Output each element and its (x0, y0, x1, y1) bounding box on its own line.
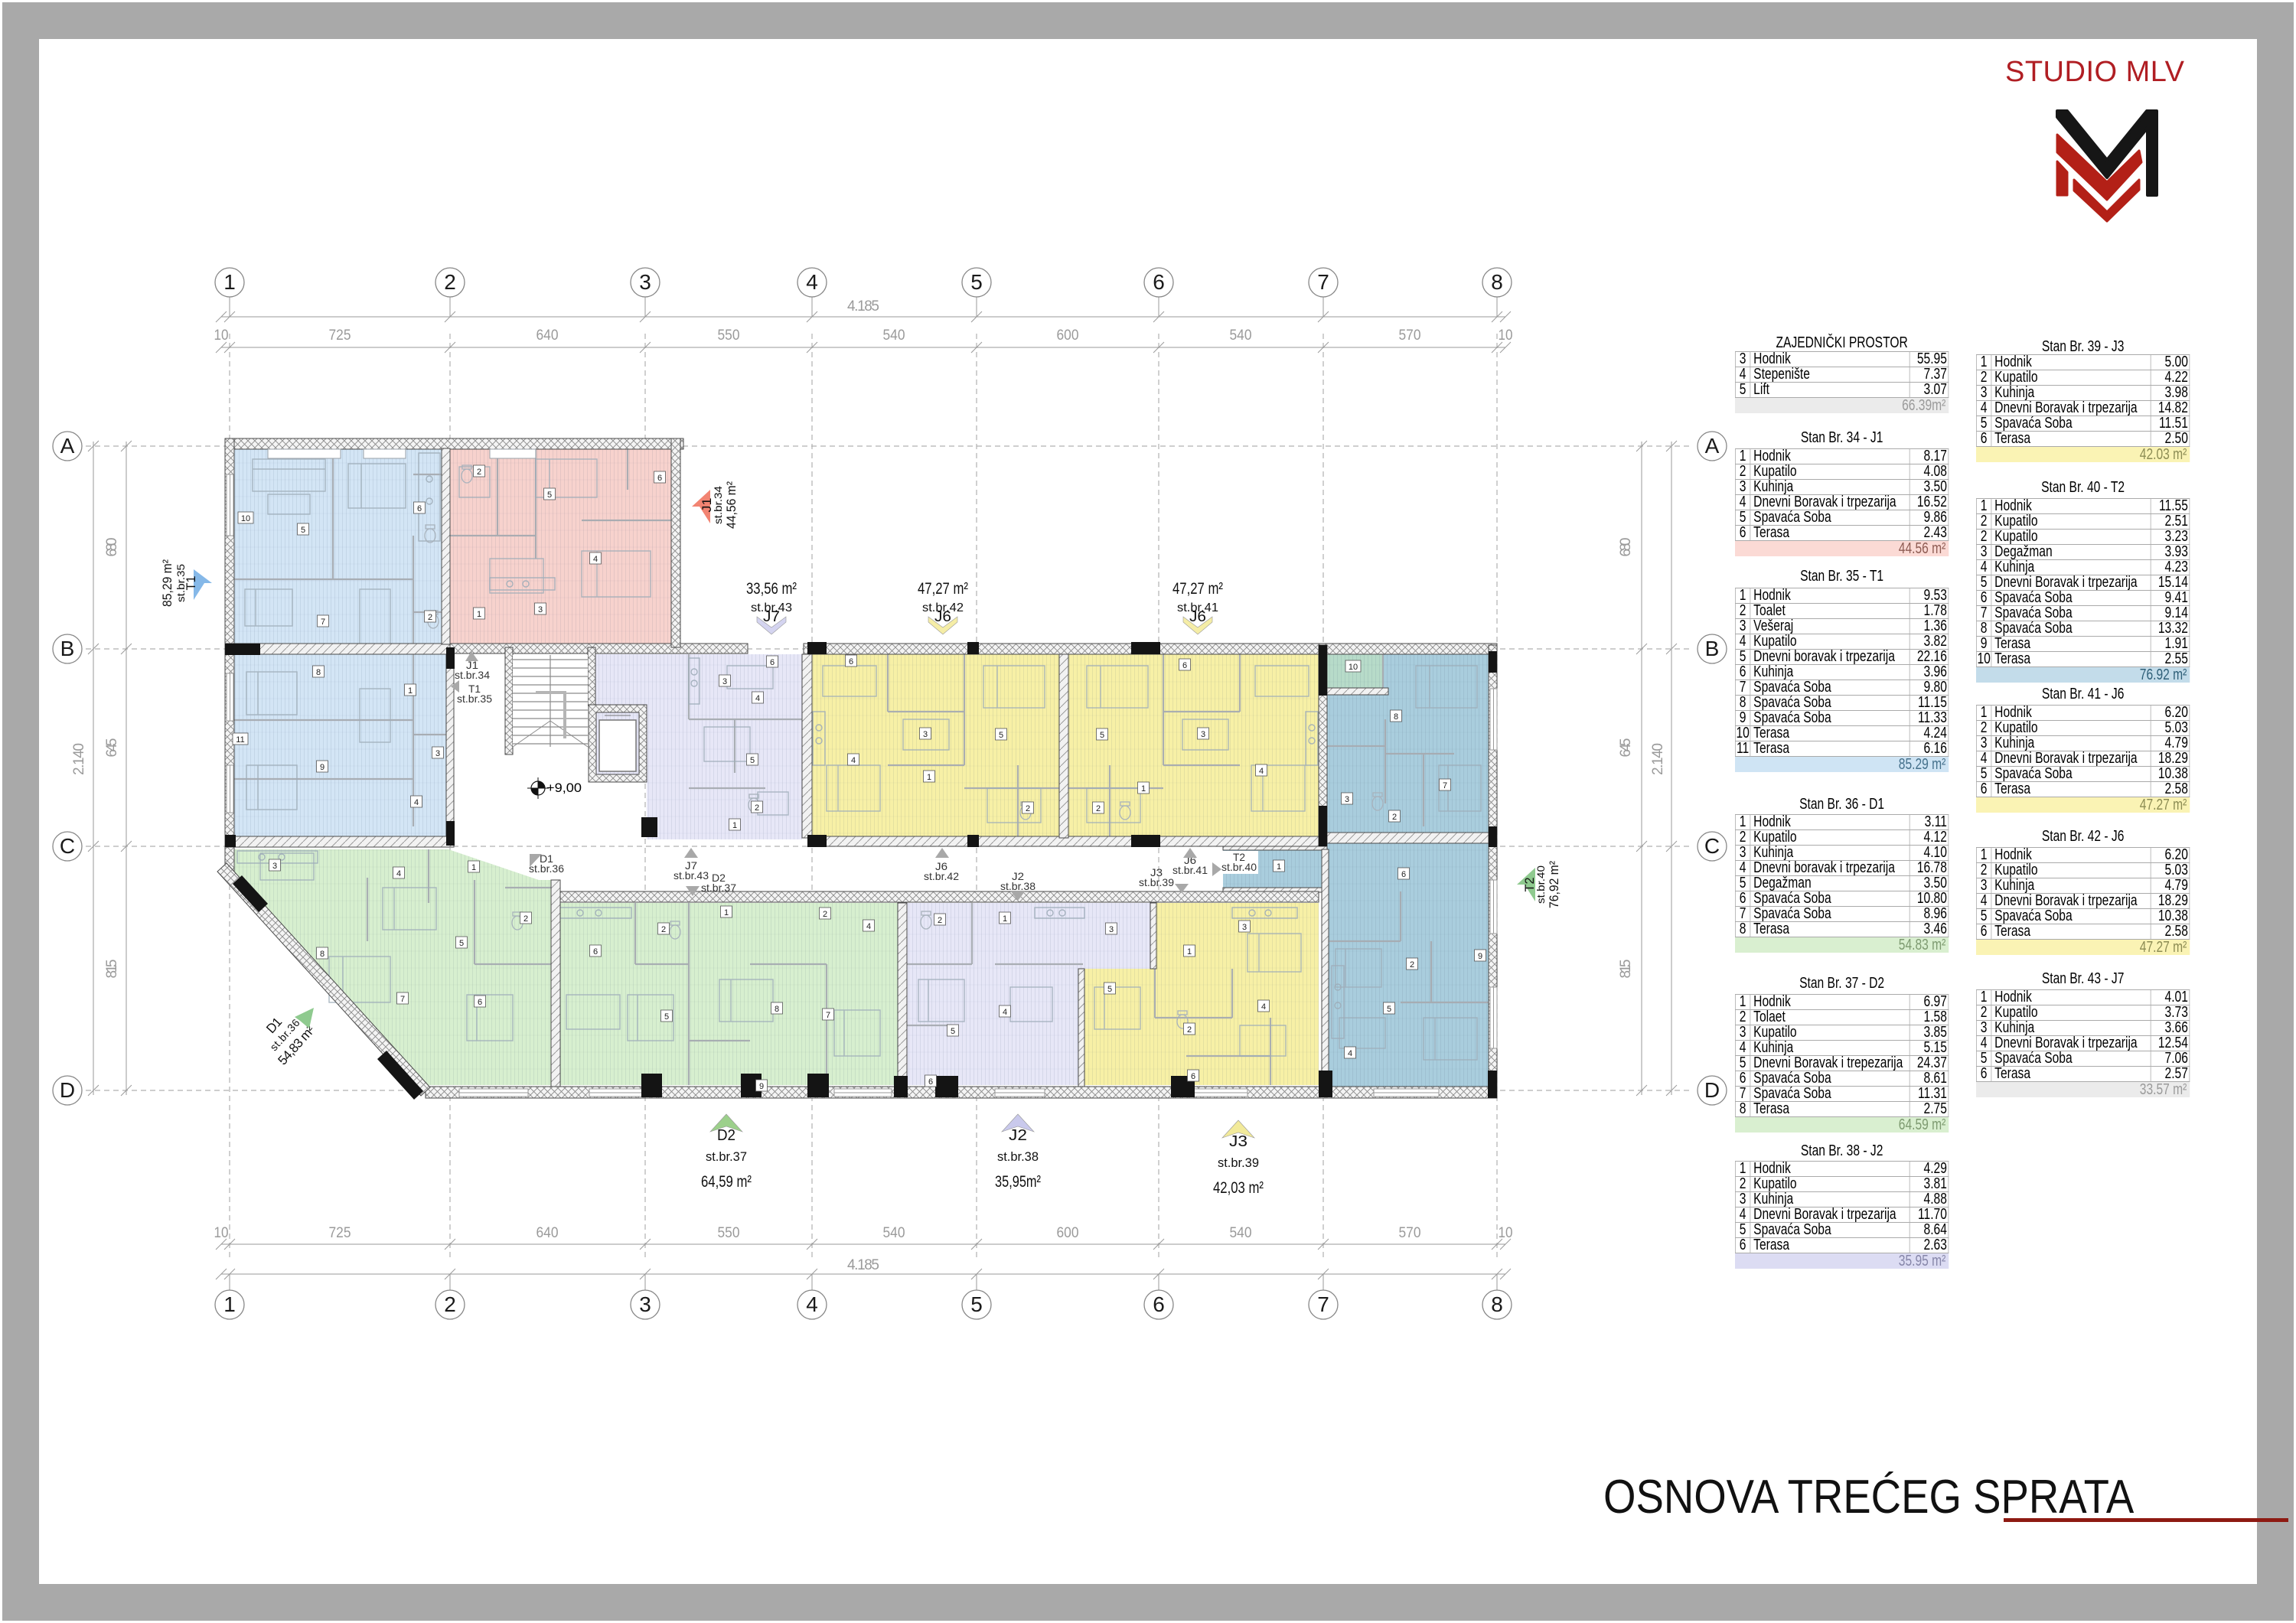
svg-text:8: 8 (1491, 1292, 1503, 1316)
svg-text:64,59 m²: 64,59 m² (701, 1173, 752, 1191)
svg-text:10: 10 (241, 514, 250, 523)
svg-text:2: 2 (661, 925, 666, 934)
svg-text:725: 725 (329, 1225, 351, 1241)
svg-text:2: 2 (428, 613, 432, 622)
svg-text:815: 815 (1618, 960, 1634, 979)
svg-text:4: 4 (414, 798, 419, 807)
svg-text:8: 8 (1491, 270, 1503, 294)
svg-text:6: 6 (1401, 870, 1406, 879)
svg-text:1: 1 (223, 1292, 236, 1316)
svg-text:680: 680 (1618, 538, 1634, 557)
svg-text:2: 2 (1096, 804, 1101, 813)
svg-text:2: 2 (1410, 960, 1414, 970)
svg-text:3: 3 (1242, 923, 1247, 932)
svg-text:6: 6 (770, 658, 775, 667)
svg-text:4: 4 (1261, 1002, 1266, 1012)
svg-text:2: 2 (938, 916, 942, 925)
svg-text:st.br.42: st.br.42 (924, 870, 959, 882)
svg-text:J2: J2 (1009, 1127, 1027, 1144)
svg-text:10: 10 (214, 1225, 229, 1241)
svg-text:10: 10 (1499, 1225, 1513, 1241)
svg-text:st.br.37: st.br.37 (701, 882, 736, 894)
svg-text:42,03 m²: 42,03 m² (1213, 1179, 1264, 1197)
svg-text:5: 5 (1387, 1005, 1391, 1014)
svg-text:1: 1 (1187, 947, 1192, 957)
svg-text:8: 8 (316, 668, 321, 677)
svg-text:4: 4 (806, 1292, 818, 1316)
svg-text:7: 7 (400, 995, 405, 1004)
svg-text:76,92 m²: 76,92 m² (1547, 861, 1561, 908)
svg-text:570: 570 (1399, 328, 1421, 344)
svg-text:st.br.39: st.br.39 (1139, 876, 1174, 888)
svg-text:1: 1 (477, 610, 481, 619)
svg-text:4: 4 (1348, 1049, 1352, 1058)
svg-text:1: 1 (471, 863, 476, 872)
svg-text:J7: J7 (763, 609, 780, 625)
svg-text:A: A (1705, 434, 1720, 458)
svg-text:540: 540 (883, 328, 905, 344)
svg-text:st.br.38: st.br.38 (997, 1149, 1039, 1164)
svg-text:2.140: 2.140 (71, 743, 87, 775)
svg-text:3: 3 (538, 605, 543, 614)
svg-text:5: 5 (664, 1012, 669, 1022)
svg-text:st.br.40: st.br.40 (1221, 861, 1257, 873)
svg-text:4: 4 (755, 694, 760, 703)
svg-text:D: D (1704, 1078, 1720, 1102)
svg-text:540: 540 (1230, 1225, 1252, 1241)
svg-text:1: 1 (927, 773, 931, 782)
svg-text:4.185: 4.185 (847, 298, 879, 314)
svg-text:1: 1 (724, 908, 729, 917)
svg-text:3: 3 (722, 677, 727, 686)
svg-text:7: 7 (1317, 270, 1329, 294)
svg-text:9: 9 (759, 1082, 764, 1091)
svg-text:st.br.43: st.br.43 (673, 869, 709, 882)
svg-text:3: 3 (639, 270, 651, 294)
svg-text:570: 570 (1399, 1225, 1421, 1241)
svg-text:6: 6 (1153, 270, 1165, 294)
svg-text:5: 5 (970, 270, 983, 294)
svg-text:4: 4 (851, 756, 856, 765)
svg-text:725: 725 (329, 328, 351, 344)
svg-text:6: 6 (657, 474, 662, 483)
svg-text:6: 6 (1153, 1292, 1165, 1316)
svg-text:7: 7 (1317, 1292, 1329, 1316)
svg-text:33,56 m²: 33,56 m² (746, 580, 797, 598)
svg-text:815: 815 (104, 960, 120, 979)
svg-text:2: 2 (1187, 1025, 1192, 1035)
svg-text:J3: J3 (1229, 1133, 1247, 1150)
svg-text:1: 1 (732, 821, 737, 830)
svg-text:2: 2 (444, 1292, 456, 1316)
svg-text:600: 600 (1057, 328, 1079, 344)
svg-text:5: 5 (1107, 985, 1112, 994)
svg-text:3: 3 (272, 862, 277, 871)
svg-text:1: 1 (408, 686, 413, 696)
svg-text:1: 1 (1141, 784, 1146, 794)
svg-text:2: 2 (444, 270, 456, 294)
svg-text:4: 4 (1003, 1008, 1007, 1017)
svg-text:D: D (60, 1078, 75, 1102)
svg-text:C: C (60, 834, 75, 858)
svg-text:8: 8 (1394, 712, 1398, 722)
svg-text:10: 10 (214, 328, 229, 344)
svg-text:6: 6 (478, 998, 482, 1007)
svg-text:st.br.39: st.br.39 (1218, 1155, 1259, 1170)
svg-text:4.185: 4.185 (847, 1257, 879, 1273)
svg-text:4: 4 (806, 270, 818, 294)
svg-text:3: 3 (1345, 795, 1349, 804)
svg-text:B: B (1705, 637, 1720, 660)
svg-text:4: 4 (593, 555, 598, 564)
svg-text:3: 3 (639, 1292, 651, 1316)
svg-text:st.br.34: st.br.34 (455, 669, 490, 681)
svg-text:540: 540 (883, 1225, 905, 1241)
svg-text:640: 640 (536, 328, 559, 344)
svg-text:1: 1 (223, 270, 236, 294)
svg-text:2: 2 (477, 468, 481, 477)
svg-text:6: 6 (1182, 661, 1187, 670)
svg-text:5: 5 (951, 1027, 955, 1036)
svg-text:9: 9 (1478, 952, 1482, 961)
svg-text:4: 4 (1259, 767, 1264, 776)
svg-text:T1: T1 (184, 576, 198, 591)
svg-text:5: 5 (999, 731, 1003, 740)
svg-text:st.br.38: st.br.38 (1000, 880, 1035, 892)
svg-text:85,29 m²: 85,29 m² (160, 559, 174, 607)
svg-text:35,95m²: 35,95m² (995, 1173, 1041, 1191)
svg-text:44,56 m²: 44,56 m² (724, 481, 739, 529)
svg-text:47,27 m²: 47,27 m² (1172, 580, 1223, 598)
svg-text:2: 2 (1392, 813, 1397, 822)
svg-text:st.br.34: st.br.34 (712, 486, 724, 524)
svg-text:8: 8 (775, 1005, 779, 1014)
svg-text:1: 1 (1003, 914, 1007, 924)
svg-text:4: 4 (866, 922, 871, 931)
svg-text:2.140: 2.140 (1650, 743, 1666, 775)
svg-text:550: 550 (718, 328, 740, 344)
svg-text:2: 2 (823, 910, 827, 919)
svg-text:645: 645 (1618, 738, 1634, 758)
svg-text:5: 5 (970, 1292, 983, 1316)
svg-text:C: C (1704, 834, 1720, 858)
svg-text:47,27 m²: 47,27 m² (918, 580, 968, 598)
svg-text:3: 3 (923, 730, 928, 739)
svg-text:6: 6 (849, 657, 853, 666)
svg-text:11: 11 (236, 735, 244, 745)
svg-text:+9,00: +9,00 (546, 781, 582, 795)
svg-text:645: 645 (104, 738, 120, 758)
svg-text:6: 6 (417, 504, 422, 513)
svg-text:3: 3 (435, 749, 440, 758)
svg-text:8: 8 (320, 950, 325, 959)
svg-text:5: 5 (459, 939, 464, 948)
svg-text:st.br.40: st.br.40 (1534, 865, 1547, 904)
svg-text:600: 600 (1057, 1225, 1079, 1241)
svg-text:7: 7 (826, 1011, 830, 1020)
svg-text:9: 9 (320, 763, 325, 772)
svg-text:10: 10 (1349, 663, 1358, 672)
svg-text:7: 7 (1443, 781, 1447, 790)
svg-text:1: 1 (1277, 862, 1281, 872)
svg-text:4: 4 (396, 869, 401, 878)
svg-text:680: 680 (104, 538, 120, 557)
svg-text:2: 2 (1026, 804, 1030, 813)
svg-text:7: 7 (321, 618, 325, 627)
svg-text:5: 5 (547, 490, 552, 500)
svg-text:2: 2 (755, 803, 759, 813)
svg-text:st.br.41: st.br.41 (1172, 864, 1208, 876)
svg-text:6: 6 (1191, 1072, 1195, 1081)
svg-text:550: 550 (718, 1225, 740, 1241)
svg-text:B: B (60, 637, 75, 660)
svg-text:3: 3 (1109, 925, 1114, 934)
svg-text:5: 5 (1100, 731, 1104, 740)
svg-text:10: 10 (1499, 328, 1513, 344)
svg-text:3: 3 (1201, 730, 1205, 739)
svg-text:J6: J6 (934, 609, 951, 625)
svg-text:J6: J6 (1189, 609, 1206, 625)
svg-text:D2: D2 (717, 1127, 735, 1144)
svg-text:st.br.37: st.br.37 (706, 1149, 747, 1164)
svg-text:st.br.36: st.br.36 (529, 862, 564, 875)
svg-text:6: 6 (593, 947, 598, 957)
svg-text:2: 2 (523, 914, 528, 924)
svg-text:5: 5 (750, 756, 755, 765)
svg-text:A: A (60, 434, 75, 458)
svg-text:640: 640 (536, 1225, 559, 1241)
svg-text:540: 540 (1230, 328, 1252, 344)
svg-text:5: 5 (301, 526, 305, 535)
svg-text:6: 6 (928, 1077, 933, 1087)
svg-text:st.br.35: st.br.35 (457, 693, 492, 705)
